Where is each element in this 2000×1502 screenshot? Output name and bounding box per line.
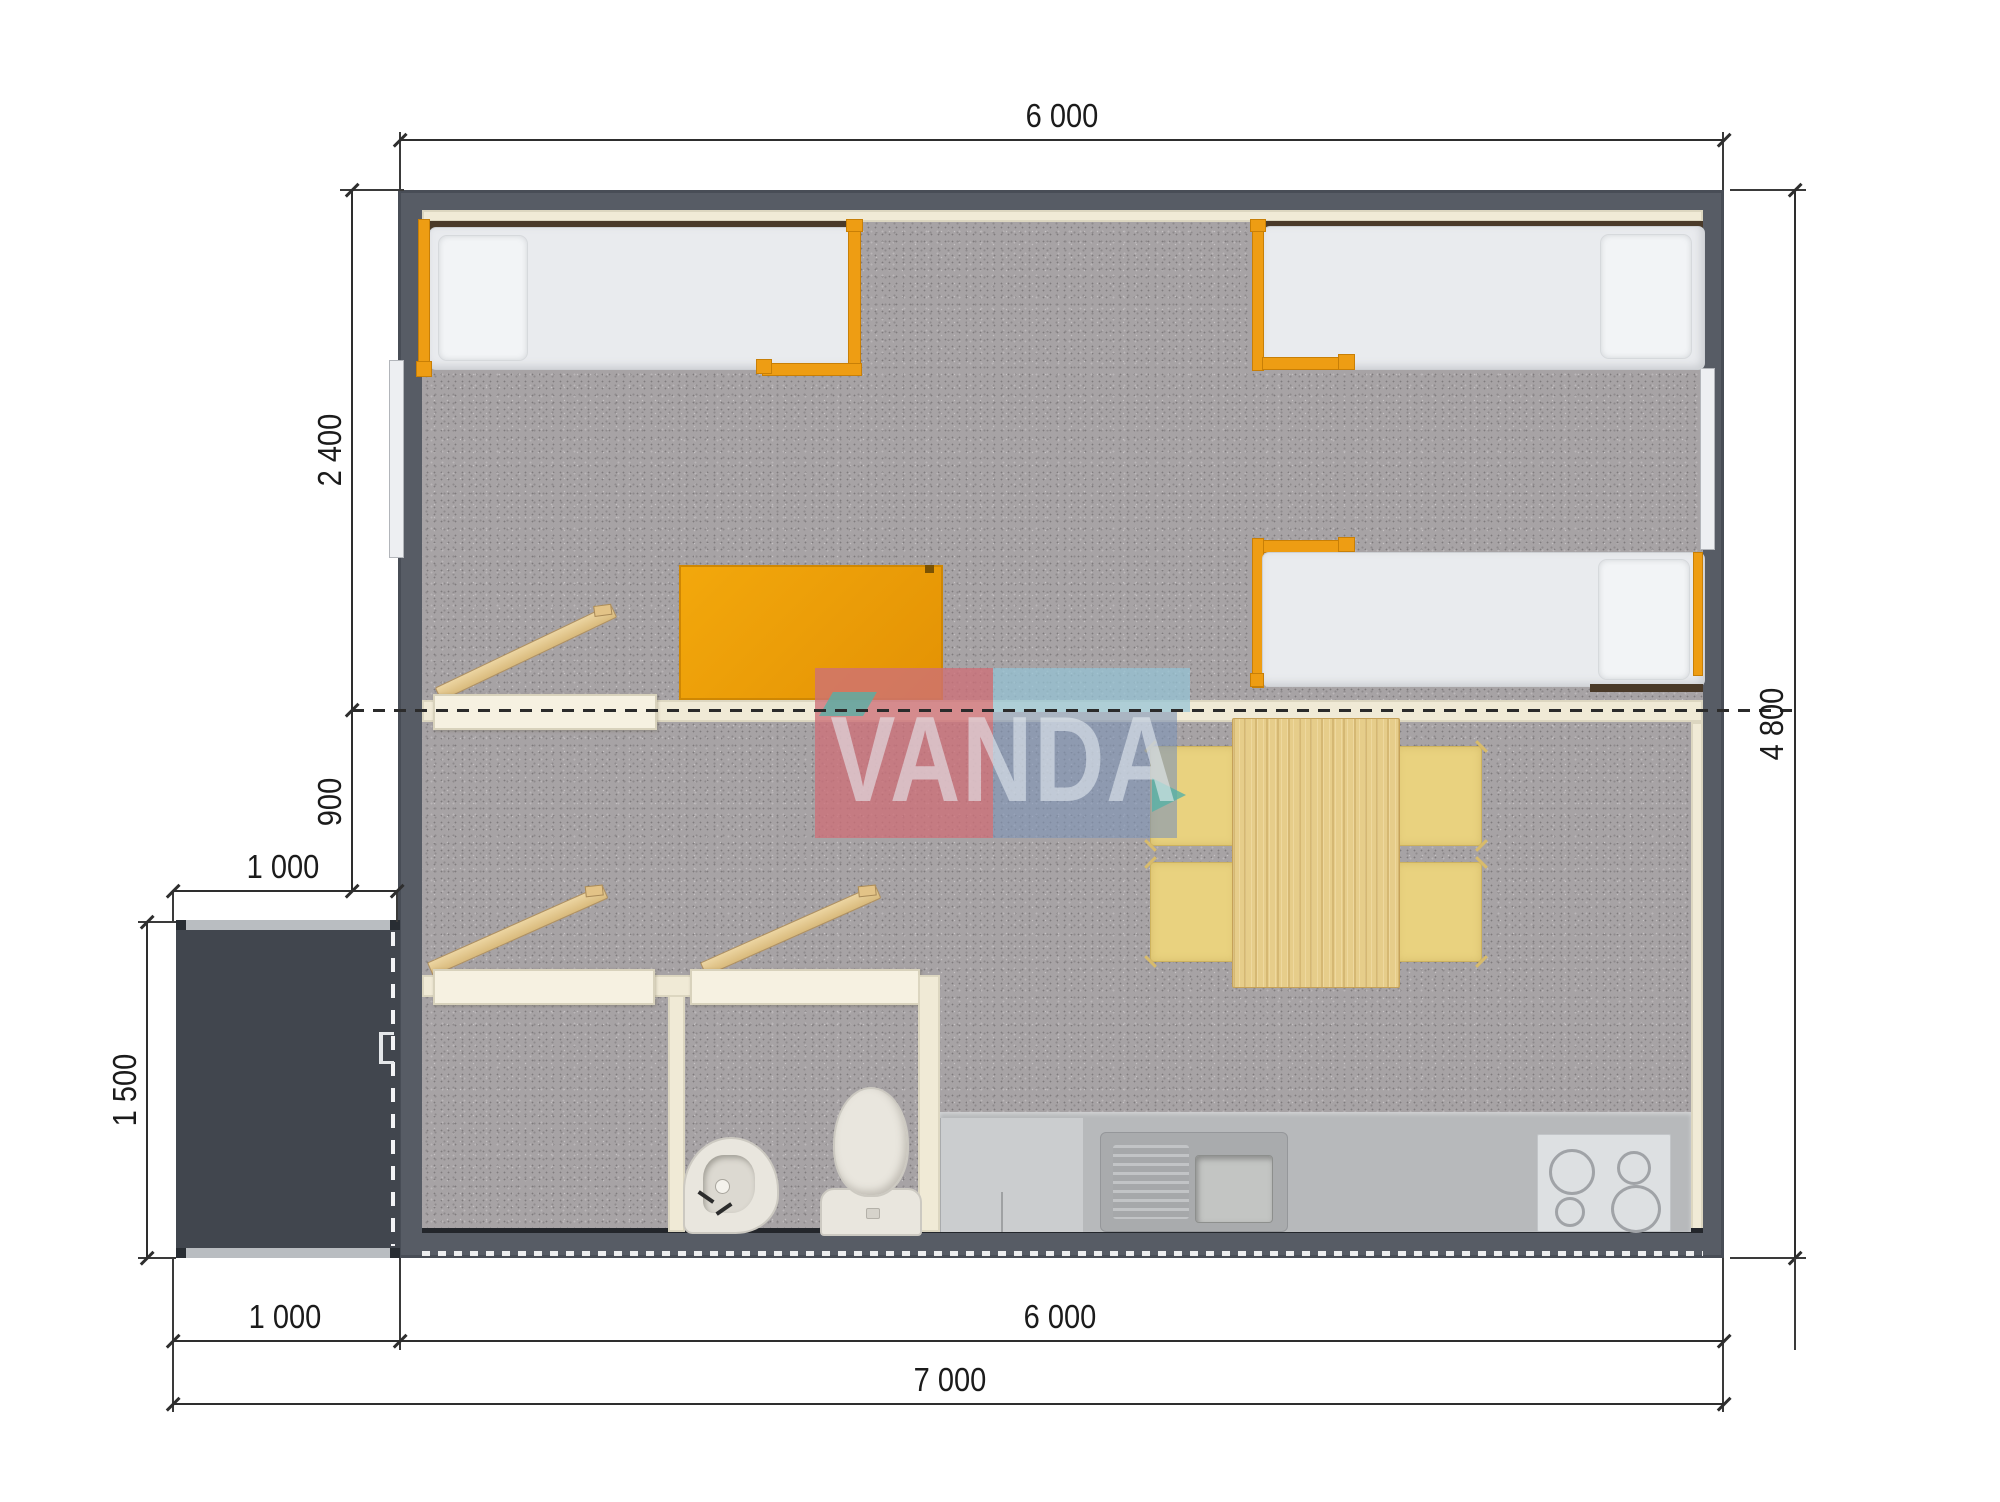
bed2-frame-left-post — [1252, 219, 1264, 371]
dim-line-bottom-total — [173, 1403, 1724, 1405]
dim-text-top-width: 6 000 — [1026, 97, 1099, 135]
bed1-frame-left-post — [418, 219, 430, 377]
extension-line — [172, 1258, 174, 1412]
window-right-wall — [1700, 368, 1715, 550]
kitchen-sink-unit — [1100, 1132, 1288, 1232]
dim-line-porch-width — [173, 890, 397, 892]
right-wall-finish-strip — [1691, 722, 1703, 1232]
bed2-pillow — [1600, 234, 1692, 359]
dim-text-bottom-porch-width: 1 000 — [249, 1298, 322, 1336]
bed2-frame-foot-bar — [1262, 357, 1350, 370]
dim-line-bottom-row1 — [173, 1340, 1724, 1342]
partition-sliding-door — [433, 694, 657, 730]
burner-small-top-right — [1617, 1151, 1651, 1185]
extension-line — [1722, 1258, 1724, 1412]
burner-large-bottom-right — [1611, 1185, 1661, 1233]
bathroom-door-left — [433, 969, 655, 1005]
dining-table — [1232, 718, 1400, 988]
window-left-wall — [389, 360, 404, 558]
dim-line-porch-depth — [146, 922, 148, 1258]
dim-line-top-width — [400, 139, 1724, 141]
extension-line — [399, 1258, 401, 1350]
porch-corner-cap — [390, 1248, 400, 1258]
faucet-icon — [715, 1179, 730, 1194]
burner-small-bottom-left — [1555, 1197, 1585, 1227]
watermark-text: VANDA — [830, 698, 1169, 820]
dim-text-porch-width: 1 000 — [247, 848, 320, 886]
dining-chair-top-right — [1396, 746, 1482, 846]
toilet-lid — [833, 1087, 909, 1197]
bathroom-door-right — [690, 969, 920, 1005]
bed1-frame-right-post — [848, 222, 861, 368]
porch-threshold-top — [186, 920, 390, 930]
bathroom-side-wall — [918, 975, 940, 1232]
bed1-frame-corner-bl — [416, 361, 432, 377]
dining-chair-bottom-right — [1396, 862, 1482, 962]
porch-corner-cap — [176, 1248, 186, 1258]
bed3-frame-corner-bl — [1250, 673, 1264, 687]
drainboard — [1113, 1145, 1189, 1219]
dining-chair-bottom-left — [1150, 862, 1236, 962]
extension-line — [396, 891, 398, 922]
floor-plan-canvas: VANDA 6 000 2 400 900 1 000 1 500 4 800 … — [0, 0, 2000, 1502]
dim-line-hall-depth — [351, 710, 353, 891]
kitchen-cabinet-white — [940, 1118, 1083, 1232]
porch-deck — [176, 922, 400, 1258]
cabinet-seam — [1001, 1192, 1003, 1232]
stove-cooktop — [1537, 1134, 1671, 1232]
porch-corner-cap — [390, 920, 400, 930]
bed2-frame-foot-block — [1338, 354, 1355, 370]
bed3-pillow — [1598, 559, 1690, 680]
extension-line — [1794, 1258, 1796, 1350]
module-joint-dashline — [352, 709, 1795, 712]
entry-door-dashline — [391, 932, 395, 1246]
dim-text-bedroom-depth: 2 400 — [311, 414, 349, 487]
door-handle-icon — [379, 1032, 394, 1064]
dim-text-porch-depth: 1 500 — [106, 1054, 144, 1127]
bathroom-sink — [683, 1137, 779, 1234]
bed3-frame-head-block — [1338, 537, 1355, 552]
toilet-flush-button — [866, 1208, 880, 1219]
bottom-deck-edge-dashes — [422, 1251, 1703, 1256]
plank-tip — [585, 884, 604, 897]
bed1-frame-foot-bar — [762, 363, 862, 376]
porch-corner-cap — [176, 920, 186, 930]
dim-text-bottom-total-width: 7 000 — [914, 1361, 987, 1399]
bed1-frame-corner-tr — [846, 219, 863, 232]
dim-text-hall-depth: 900 — [311, 778, 349, 826]
kitchen-sink-basin — [1195, 1155, 1273, 1223]
bed3-frame-right-post — [1693, 552, 1703, 676]
bed3-foot-strip — [1590, 684, 1703, 692]
bed1-pillow — [438, 235, 528, 361]
dim-line-bedroom-depth — [351, 190, 353, 710]
porch-threshold-bottom — [186, 1248, 390, 1258]
bed1-frame-foot-block — [756, 359, 772, 374]
burner-large-top-left — [1549, 1149, 1595, 1195]
dim-line-right-height — [1794, 190, 1796, 1258]
dim-text-bottom-building-width: 6 000 — [1024, 1298, 1097, 1336]
bed2-frame-corner-tl — [1250, 219, 1266, 232]
extension-line — [172, 891, 174, 922]
dim-text-right-height: 4 800 — [1753, 688, 1791, 761]
plank-tip — [593, 604, 612, 617]
desk-handle-mark — [925, 565, 934, 573]
plank-tip — [858, 884, 877, 897]
